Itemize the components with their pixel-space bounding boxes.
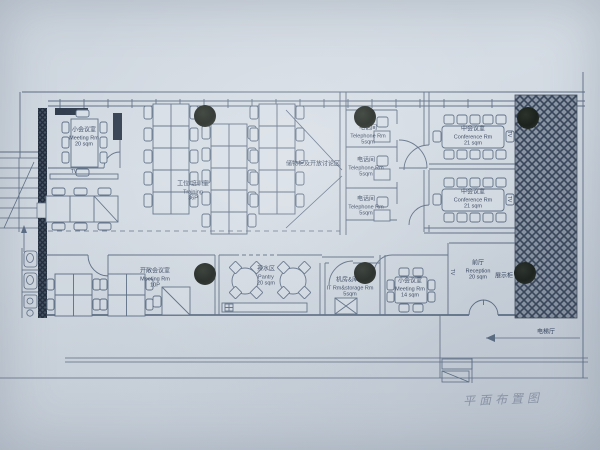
annotation-text: 电梯厅 (537, 329, 555, 337)
room-name-en: Meeting Rm (395, 286, 425, 293)
it-room-equipment (335, 298, 357, 314)
room-area: 5sqm (350, 140, 385, 147)
room-area: 5sqm (348, 211, 383, 218)
label-telephone-1: 电话间 Telephone Rm 5sqm (350, 125, 385, 146)
magnet-dot (354, 262, 376, 284)
arrow-head (486, 334, 495, 342)
room-area: 21 sqm (454, 204, 493, 211)
room-area: 20 sqm (466, 275, 491, 282)
label-conference-2: 中会议室 Conference Rm 21 sqm (454, 189, 493, 210)
tv-mark: TV (506, 196, 512, 202)
wc-fixtures (22, 248, 38, 318)
area-name-cn: 储物柜及开放讨论区 (286, 161, 340, 169)
room-name-en: Telephone Rm (348, 165, 383, 172)
label-open-meeting: 开敞会议室 Meeting Rm 10P (140, 268, 170, 289)
magnet-dot (514, 262, 536, 284)
label-display-cabinet: 展示柜 (495, 273, 513, 281)
room-area: 21 sqm (454, 141, 493, 148)
room-name-en: Telephone Rm (348, 204, 383, 211)
room-name-en: Training (177, 189, 209, 196)
corridor-door (399, 140, 427, 168)
tv-mark: TV (506, 131, 512, 137)
room-name-cn: 电话间 (348, 157, 383, 165)
label-telephone-3: 电话间 Telephone Rm 5sqm (348, 196, 383, 217)
elevator-hall-lines (0, 315, 588, 383)
room-name-en: Pantry (257, 274, 275, 281)
room-name-en: Conference Rm (454, 197, 493, 204)
training-desks (144, 104, 304, 234)
room-area: 10P (140, 283, 170, 290)
room-name-en: Meeting Rm (140, 276, 170, 283)
room-name-en: Meeting Rm (69, 135, 99, 142)
label-conference-1: 中会议室 Conference Rm 21 sqm (454, 126, 493, 147)
magnet-dot (194, 105, 216, 127)
door-arc (374, 255, 392, 273)
label-telephone-2: 电话间 Telephone Rm 5sqm (348, 157, 383, 178)
collab-table (46, 188, 118, 230)
room-name-cn: 工位/培训室 (177, 181, 209, 189)
label-meeting-14: 小会议室 Meeting Rm 14 sqm (395, 278, 425, 299)
room-name-en: Reception (466, 268, 491, 275)
floorplan-photo: 小会议室 Meeting Rm 20 sqm 工位/培训室 Training 3… (0, 0, 600, 450)
room-name-cn: 中会议室 (454, 126, 493, 134)
room-name-en: Telephone Rm (350, 133, 385, 140)
annotation-text: 展示柜 (495, 273, 513, 281)
label-training: 工位/培训室 Training 36P (177, 181, 209, 202)
room-name-cn: 中会议室 (454, 189, 493, 197)
room-area: 20 sqm (257, 281, 275, 288)
magnet-dot (517, 107, 539, 129)
room-name-cn: 小会议室 (69, 127, 99, 135)
magnet-dot (354, 106, 376, 128)
room-name-en: Conference Rm (454, 134, 493, 141)
room-name-cn: 茶水区 (257, 266, 275, 274)
room-area: 5sqm (348, 172, 383, 179)
room-area: 36P (177, 196, 209, 203)
conference-rooms (404, 92, 515, 233)
room-name-cn: 电话间 (348, 196, 383, 204)
room-area: 5sqm (327, 292, 374, 299)
magnet-dot (194, 263, 216, 285)
room-name-cn: 前厅 (466, 260, 491, 268)
label-pantry: 茶水区 Pantry 20 sqm (257, 266, 275, 287)
label-reception: 前厅 Reception 20 sqm (466, 260, 491, 281)
room-name-cn: 开敞会议室 (140, 268, 170, 276)
staircase (0, 158, 38, 252)
label-elevator-hall: 电梯厅 (537, 329, 555, 337)
door-arc (409, 205, 429, 225)
floorplan-drawing (0, 0, 600, 450)
room-name-en: IT Rm&storage Rm (327, 285, 374, 292)
room-name-cn: 小会议室 (395, 278, 425, 286)
label-open-discussion: 储物柜及开放讨论区 (286, 161, 340, 169)
tv-mark: TV (449, 269, 455, 275)
handwritten-title: 平面布置图 (463, 389, 544, 409)
room-area: 14 sqm (395, 293, 425, 300)
room-area: 20 sqm (69, 142, 99, 149)
reception-double-door (469, 300, 498, 315)
pantry-counter (222, 303, 307, 312)
label-meeting-20: 小会议室 Meeting Rm 20 sqm (69, 127, 99, 148)
door-arc (88, 255, 108, 276)
tv-mark: TV (71, 169, 77, 175)
